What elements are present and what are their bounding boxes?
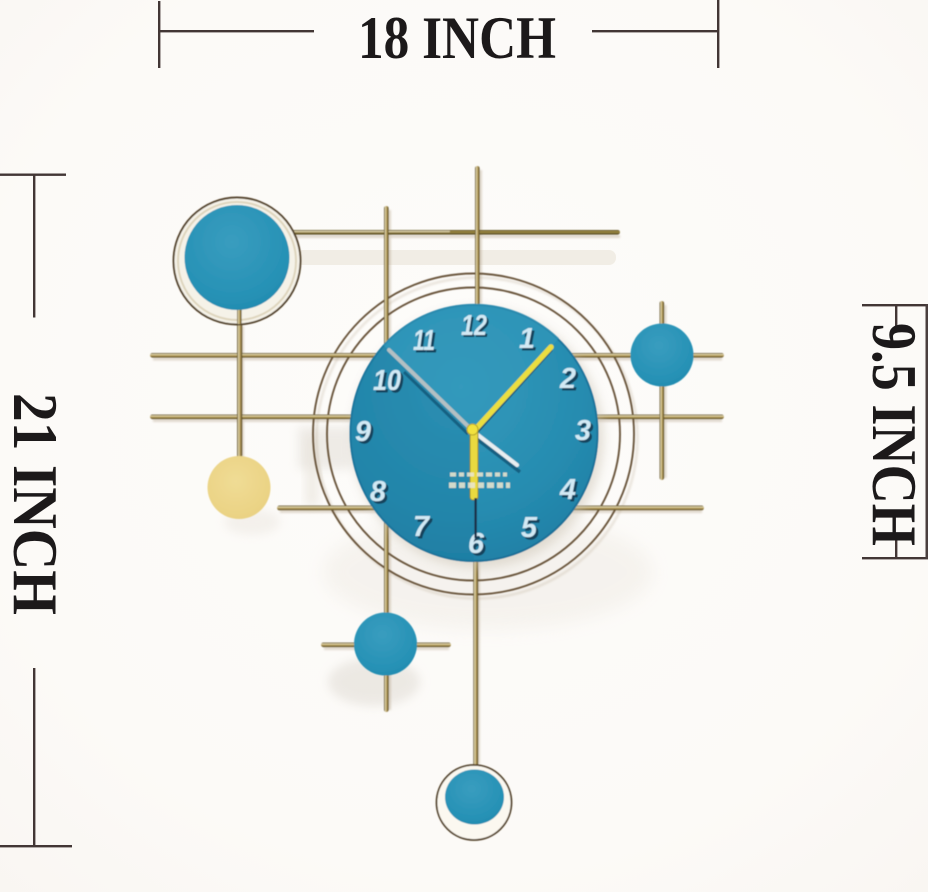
svg-text:8: 8 — [370, 476, 387, 508]
svg-text:9.5 INCH: 9.5 INCH — [859, 323, 928, 546]
svg-text:10: 10 — [373, 365, 401, 397]
svg-text:2: 2 — [559, 363, 576, 395]
svg-text:12: 12 — [461, 310, 487, 342]
svg-text:1: 1 — [519, 323, 535, 355]
svg-text:7: 7 — [413, 511, 431, 543]
svg-text:4: 4 — [559, 474, 576, 506]
svg-text:9: 9 — [355, 416, 371, 448]
svg-text:3: 3 — [575, 415, 591, 447]
svg-text:11: 11 — [413, 325, 435, 357]
svg-text:18 INCH: 18 INCH — [358, 5, 556, 71]
svg-text:5: 5 — [521, 512, 538, 544]
svg-text:21 INCH: 21 INCH — [0, 393, 70, 615]
